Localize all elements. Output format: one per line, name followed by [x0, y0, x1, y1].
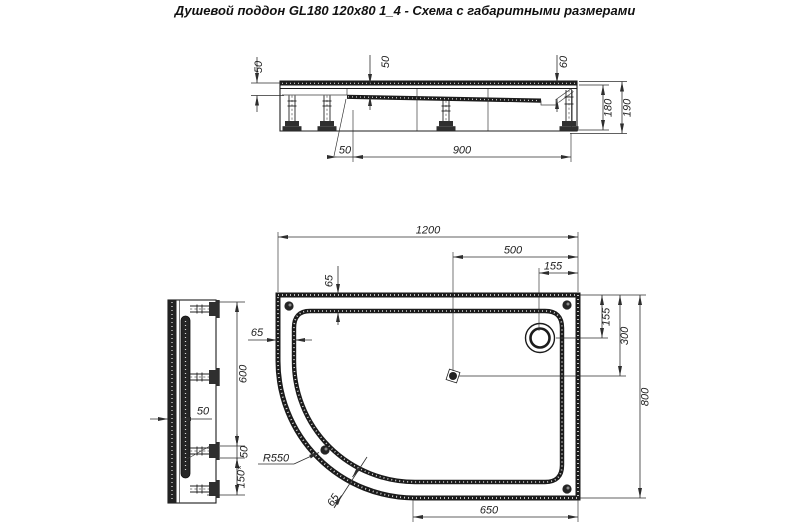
leg [318, 96, 337, 131]
corner-screw [562, 300, 571, 309]
leg [283, 96, 302, 131]
dim-plan-rim-top: 65 [324, 274, 336, 287]
dim-plan-corner-radius: R550 [263, 453, 290, 465]
drain-recess [541, 99, 556, 105]
dim-plan-depth: 800 [640, 387, 652, 406]
dim-front-basin-depth: 50 [380, 55, 392, 68]
corner-screw [320, 445, 329, 454]
dim-plan-drain-offset-x: 155 [544, 261, 563, 273]
corner-screw [562, 484, 571, 493]
dim-plan-center-offset: 300 [619, 326, 631, 345]
leg [190, 368, 220, 386]
leg [190, 300, 220, 318]
rim-band [280, 81, 577, 86]
dim-front-drain-depth: 60 [558, 55, 570, 68]
schematic-page: Душевой поддон GL180 120x80 1_4 - Схема … [0, 0, 810, 528]
dim-plan-drain-offset-y: 155 [601, 307, 613, 326]
plan-view: 1200 500 155 65 65 155 300 800 650 600 5… [207, 225, 652, 523]
dim-side-edge-offset: 50 [197, 406, 210, 418]
dim-plan-drain-to-edge: 500 [504, 245, 523, 257]
corner-screw [284, 301, 293, 310]
dim-plan-bottom-edge: 650 [480, 505, 499, 517]
leg [560, 90, 579, 131]
leg [190, 442, 220, 460]
dim-front-rim-height: 50 [253, 60, 265, 73]
center-screw [446, 369, 460, 383]
dim-side-upper-length: 600 [238, 364, 250, 383]
front-section-view: 50 50 60 180 190 50 900 [251, 55, 634, 162]
schematic-canvas: Душевой поддон GL180 120x80 1_4 - Схема … [0, 0, 810, 528]
dim-front-leg-span: 900 [453, 145, 472, 157]
basin-outline [294, 311, 562, 482]
dim-plan-rim-left: 65 [251, 327, 264, 339]
dim-plan-width: 1200 [416, 225, 441, 237]
dim-front-total-height: 190 [622, 98, 634, 117]
dim-front-body-height: 180 [603, 98, 615, 117]
dim-side-lower-length: 150* [236, 465, 248, 488]
drawing-title: Душевой поддон GL180 120x80 1_4 - Схема … [174, 3, 636, 18]
dim-plan-rim-arc: 65 [325, 491, 342, 509]
dim-front-leg-inset: 50 [339, 145, 352, 157]
dim-side-gap: 50 [239, 445, 251, 458]
leg [437, 101, 456, 131]
side-section-view: 50 [150, 300, 220, 503]
